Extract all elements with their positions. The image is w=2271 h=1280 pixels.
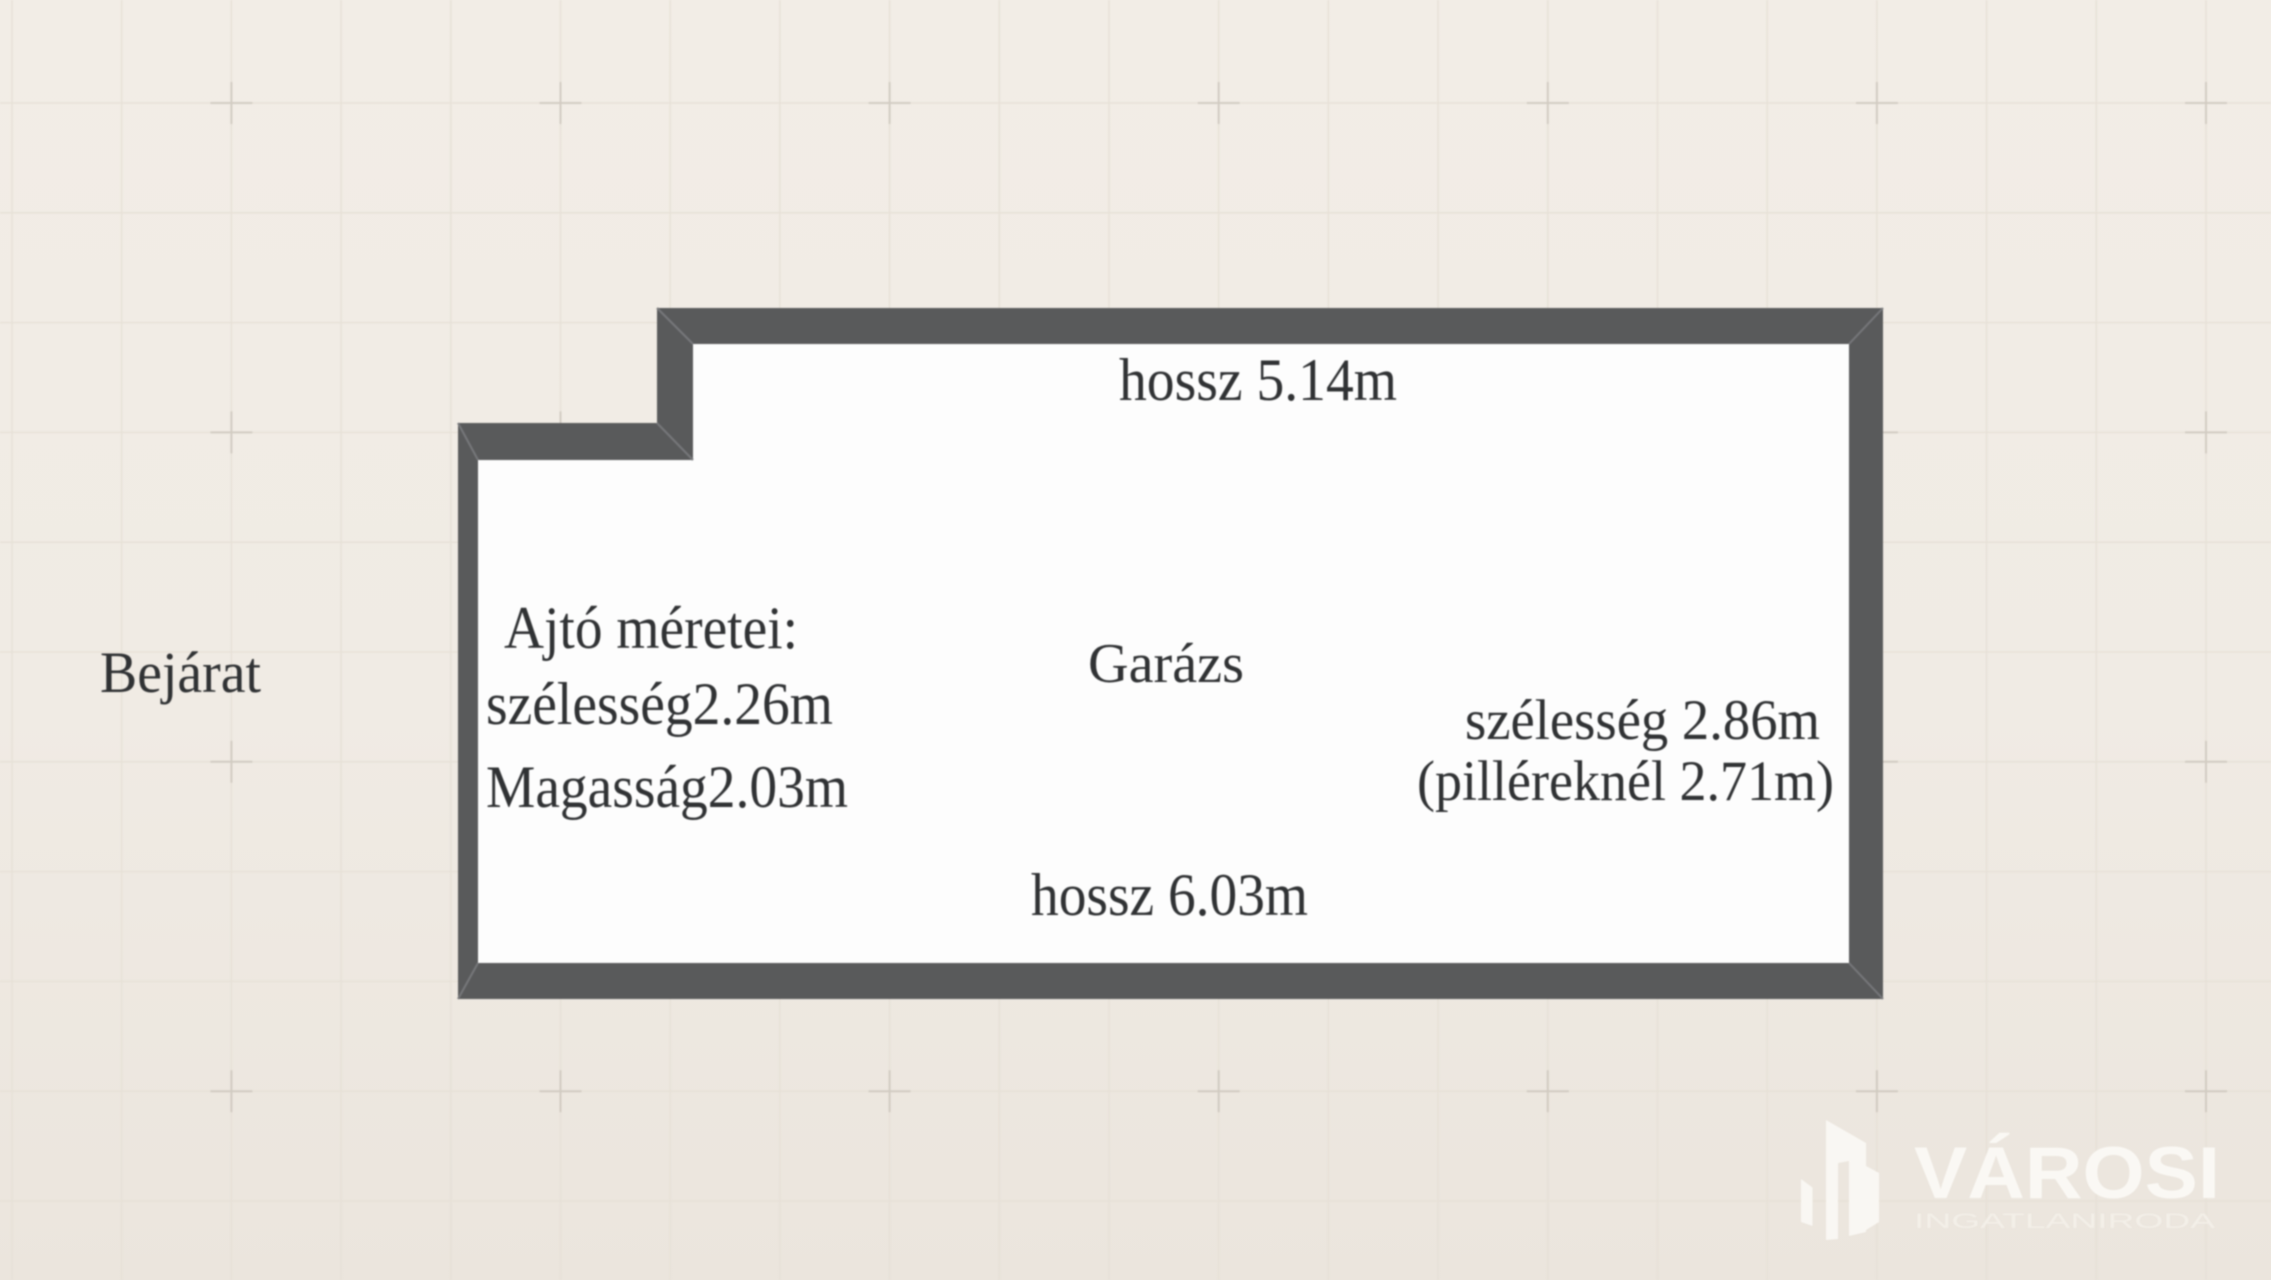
svg-text:hossz 5.14m: hossz 5.14m <box>1119 347 1397 413</box>
svg-text:VÁROSI: VÁROSI <box>1914 1133 2220 1214</box>
svg-text:Bejárat: Bejárat <box>100 640 261 705</box>
svg-text:Garázs: Garázs <box>1088 633 1244 695</box>
svg-text:INGATLANIRODA: INGATLANIRODA <box>1914 1210 2215 1233</box>
svg-text:hossz 6.03m: hossz 6.03m <box>1031 862 1308 928</box>
svg-text:Magasság2.03m: Magasság2.03m <box>486 754 848 820</box>
svg-text:szélesség 2.86m: szélesség 2.86m <box>1465 689 1820 752</box>
svg-text:(pilléreknél 2.71m): (pilléreknél 2.71m) <box>1417 750 1834 813</box>
svg-text:Ajtó méretei:: Ajtó méretei: <box>504 595 798 661</box>
svg-text:szélesség2.26m: szélesség2.26m <box>486 671 833 737</box>
